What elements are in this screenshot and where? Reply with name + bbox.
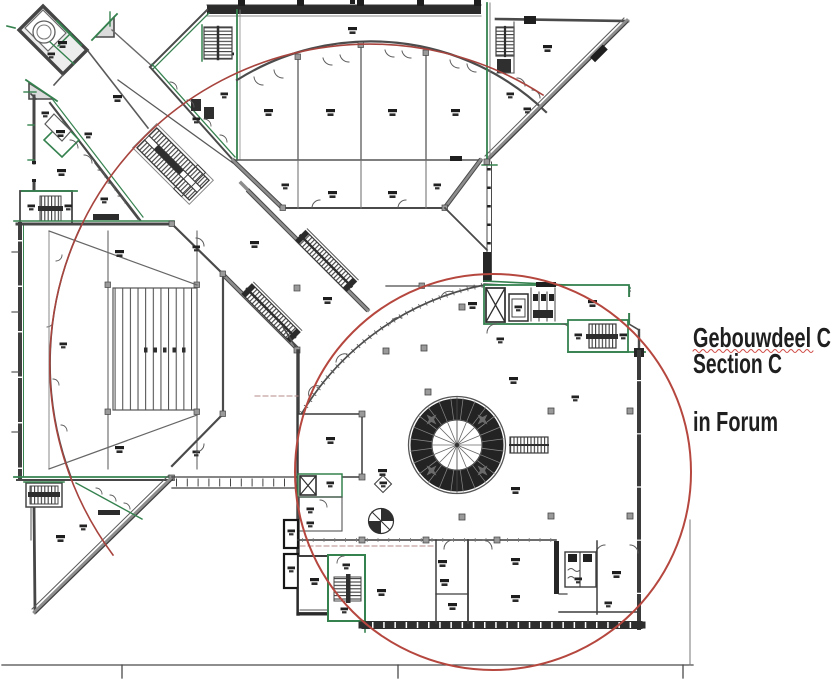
svg-text:in Forum: in Forum <box>693 406 778 437</box>
